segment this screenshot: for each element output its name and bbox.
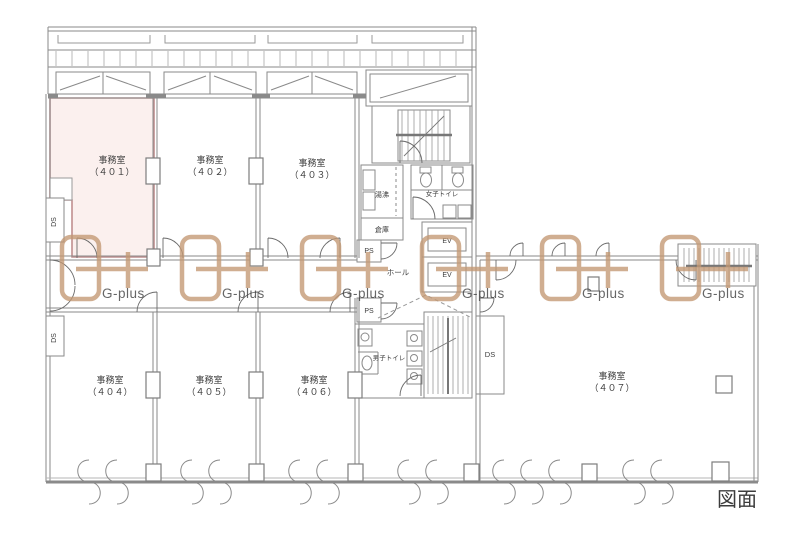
watermark-logo: G-plus <box>422 237 508 301</box>
balcony-railing-ticks <box>56 51 472 66</box>
watermark-logo: G-plus <box>182 237 268 301</box>
room-407-label: 事務室 <box>598 370 625 381</box>
stairs-main <box>378 295 504 398</box>
elevator-2-label: EV <box>442 272 452 279</box>
room-401-highlight <box>50 98 154 257</box>
room-401-alcove <box>50 178 72 200</box>
watermark-text: G-plus <box>462 286 505 301</box>
watermark-text: G-plus <box>102 286 145 301</box>
stairs-upper <box>366 70 472 163</box>
columns <box>146 158 732 481</box>
mens-toilet-label: 男子トイレ <box>373 354 406 362</box>
duct-3-label: DS <box>485 350 495 359</box>
hall-label: ホール <box>387 268 410 277</box>
storage-label: 倉庫 <box>375 225 389 234</box>
room-405-number: （４０５） <box>186 387 231 397</box>
watermark-text: G-plus <box>222 286 265 301</box>
hot-water-label: 湯沸 <box>375 190 389 199</box>
room-403-label: 事務室 <box>298 157 325 168</box>
room-401-number: （４０１） <box>89 167 134 177</box>
floor-plan-drawing: 事務室 （４０１） 事務室 （４０２） 事務室 （４０３） 事務室 （４０４） … <box>0 0 800 534</box>
room-402-number: （４０２） <box>187 167 232 177</box>
room-406-label: 事務室 <box>300 374 327 385</box>
room-404-label: 事務室 <box>96 374 123 385</box>
room-401-label: 事務室 <box>98 154 125 165</box>
watermark-text: G-plus <box>342 286 385 301</box>
watermark-logo: G-plus <box>302 237 388 301</box>
upper-windows <box>48 72 366 96</box>
room-403-number: （４０３） <box>289 170 334 180</box>
watermark-text: G-plus <box>702 286 745 301</box>
watermark-text: G-plus <box>582 286 625 301</box>
floor-plan-page: 事務室 （４０１） 事務室 （４０２） 事務室 （４０３） 事務室 （４０４） … <box>0 0 800 534</box>
room-402-label: 事務室 <box>196 154 223 165</box>
room-404-number: （４０４） <box>87 387 132 397</box>
stairs-external <box>678 244 756 286</box>
drawing-caption: 図面 <box>717 489 757 511</box>
elevators <box>422 222 472 292</box>
watermark-logo: G-plus <box>542 237 628 301</box>
room-405-label: 事務室 <box>195 374 222 385</box>
pipe-shaft-2-label: PS <box>364 308 374 315</box>
womens-toilet-label: 女子トイレ <box>426 189 459 198</box>
room-407-number: （４０７） <box>589 383 634 393</box>
balcony <box>48 27 476 94</box>
room-406-number: （４０６） <box>291 387 336 397</box>
duct-1-label: DS <box>51 217 58 227</box>
duct-2-label: DS <box>51 333 58 343</box>
